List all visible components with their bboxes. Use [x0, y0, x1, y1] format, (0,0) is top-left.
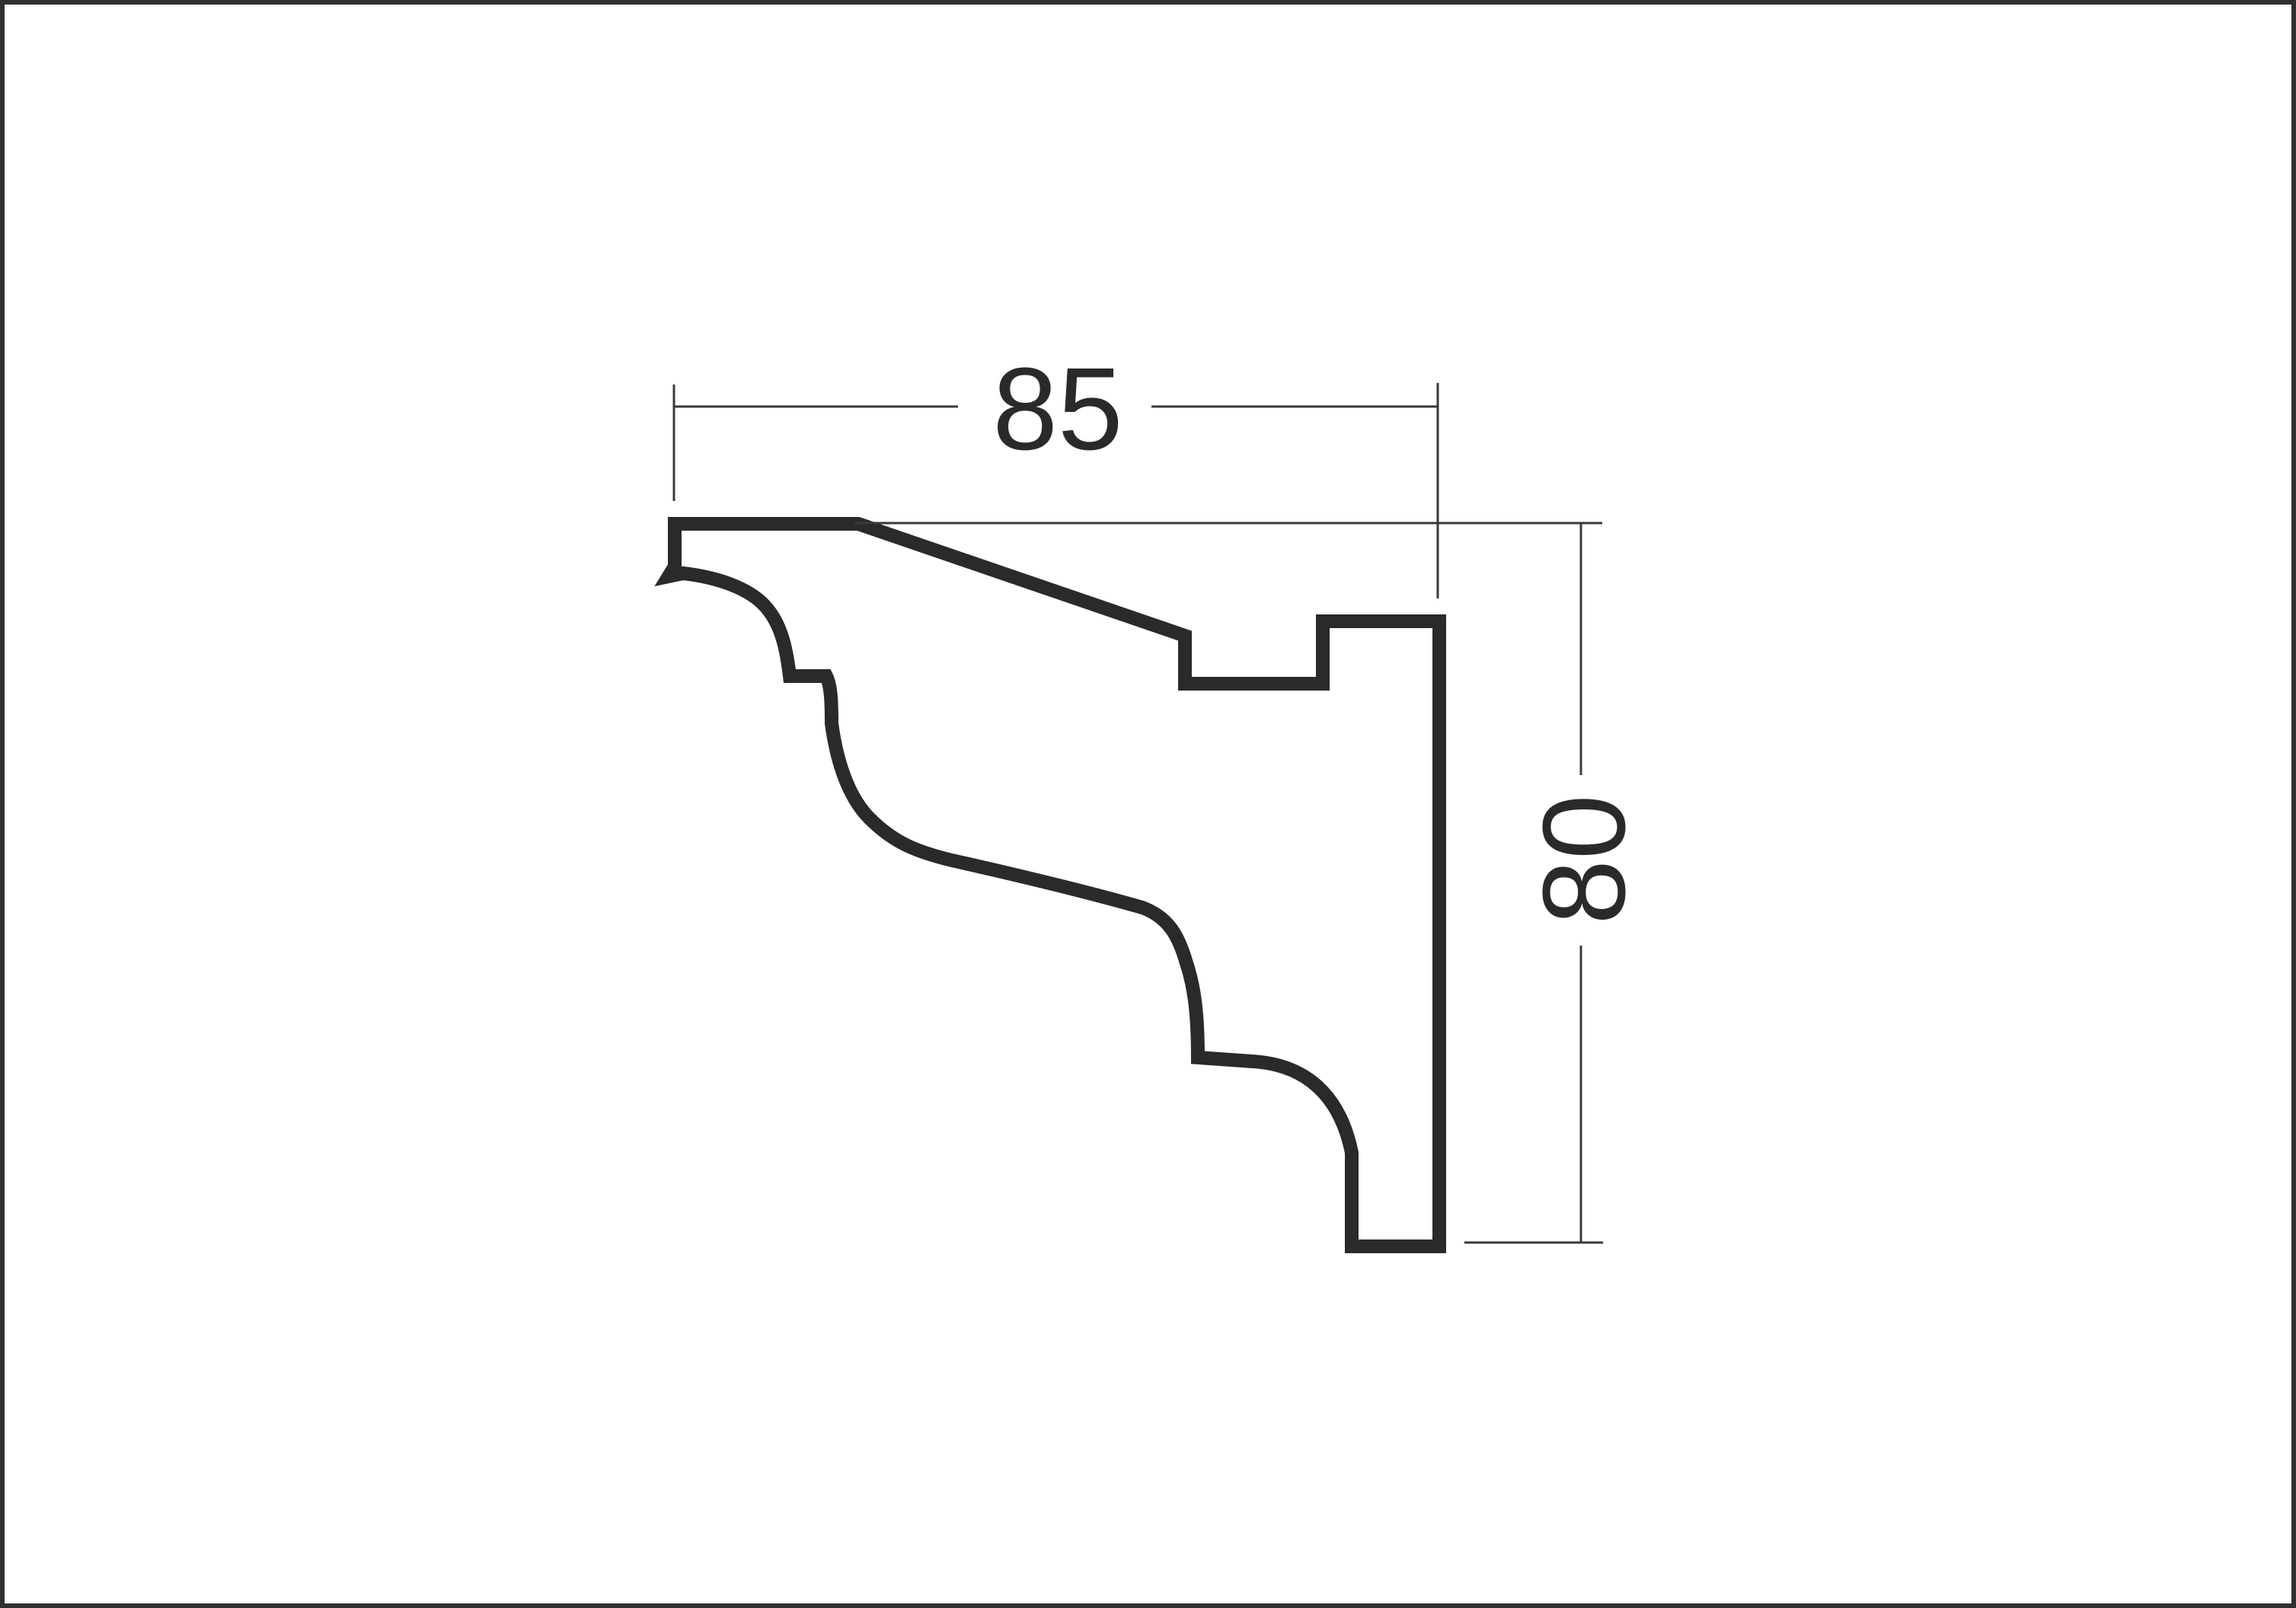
molding-profile-outline — [669, 524, 1439, 1246]
height-dimension-label: 80 — [1518, 794, 1649, 924]
technical-drawing-canvas: 85 80 — [0, 0, 2296, 1608]
drawing-page: 85 80 — [0, 0, 2296, 1608]
width-dimension-label: 85 — [992, 343, 1122, 474]
